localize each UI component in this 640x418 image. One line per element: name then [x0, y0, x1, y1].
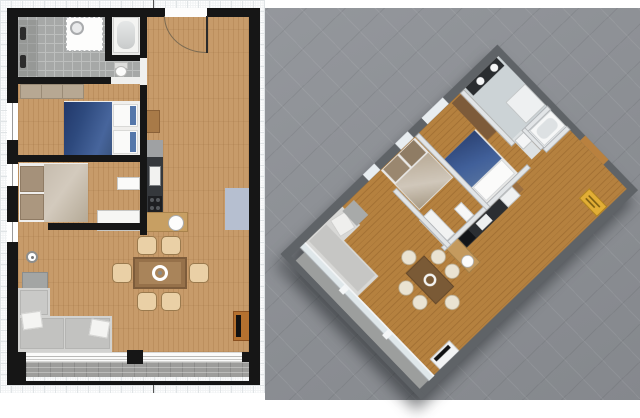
bedroom1-bedroom2-wall: [18, 155, 147, 162]
bathtub-room-wall-bottom: [105, 55, 140, 61]
window: [7, 164, 18, 186]
pillow-stripe: [130, 132, 136, 152]
plate-ring-3d: [421, 271, 439, 289]
burner: [150, 206, 154, 210]
counter-top-unit: [147, 140, 163, 157]
dining-chair: [161, 292, 181, 311]
bed2-pillow-2: [20, 194, 44, 220]
toilet-bowl: [115, 66, 127, 77]
burner: [156, 206, 160, 210]
table-center-dot: [158, 271, 162, 275]
white-dresser: [117, 177, 140, 190]
view-3d-panel: [265, 0, 640, 418]
door-center-mullion: [127, 350, 143, 364]
pillow-stripe: [130, 106, 136, 125]
outer-wall-right: [249, 8, 260, 385]
bedroom2-living-wall: [48, 223, 147, 230]
outer-wall-top: [7, 8, 260, 17]
door-end-post: [242, 352, 250, 362]
bed2-duvet: [44, 164, 88, 222]
table-plate-ring: [152, 265, 168, 281]
window: [7, 103, 18, 140]
burner: [156, 198, 160, 202]
island-round-sink: [168, 215, 184, 231]
shower-head-icon: [70, 21, 84, 35]
tv-screen: [236, 315, 241, 337]
floor-plan-screenshot: [0, 0, 640, 418]
bed1-pillow-2: [113, 130, 138, 154]
floor-lamp: [26, 251, 38, 263]
outer-wall-left: [7, 8, 18, 385]
bathroom-door-gap: [111, 77, 140, 84]
sofa-pillow: [89, 318, 111, 338]
bed2-pillow-1: [20, 166, 44, 192]
kitchen-island: [140, 212, 188, 232]
plan-2d-panel: [0, 0, 265, 418]
ruler-tick-bottom: [153, 385, 154, 393]
bed1-blue-duvet: [64, 102, 112, 157]
blue-rug: [225, 188, 252, 230]
dining-chair: [137, 236, 157, 255]
dining-chair: [137, 292, 157, 311]
bathtub: [113, 17, 139, 53]
dining-chair: [112, 263, 132, 283]
cooktop: [148, 196, 162, 212]
window: [7, 222, 18, 242]
bathtub-basin: [117, 21, 135, 49]
sofa-pillow: [21, 311, 43, 331]
wardrobe-dresser: [20, 84, 84, 99]
lamp-center: [31, 256, 34, 259]
entrance-door-leaf: [206, 16, 208, 53]
door-end-post: [18, 352, 26, 362]
apartment-3d-model: [282, 36, 637, 388]
washbasin-faucet-1: [20, 27, 26, 40]
shower: [66, 17, 103, 51]
outer-wall-bottom: [7, 381, 260, 385]
hall-wall-upper: [140, 16, 147, 58]
dining-chair: [189, 263, 209, 283]
ruler-tick-top: [153, 0, 154, 8]
bed1-pillow-1: [113, 104, 138, 127]
hall-door-gap: [140, 58, 147, 85]
balcony-floor: [26, 362, 250, 377]
ground-plane: [265, 8, 640, 400]
bathroom-wall: [18, 77, 111, 84]
dining-chair: [161, 236, 181, 255]
dining-table: [133, 257, 187, 289]
burner: [150, 198, 154, 202]
kitchen-sink: [149, 166, 161, 186]
washbasin-faucet-2: [20, 55, 26, 68]
